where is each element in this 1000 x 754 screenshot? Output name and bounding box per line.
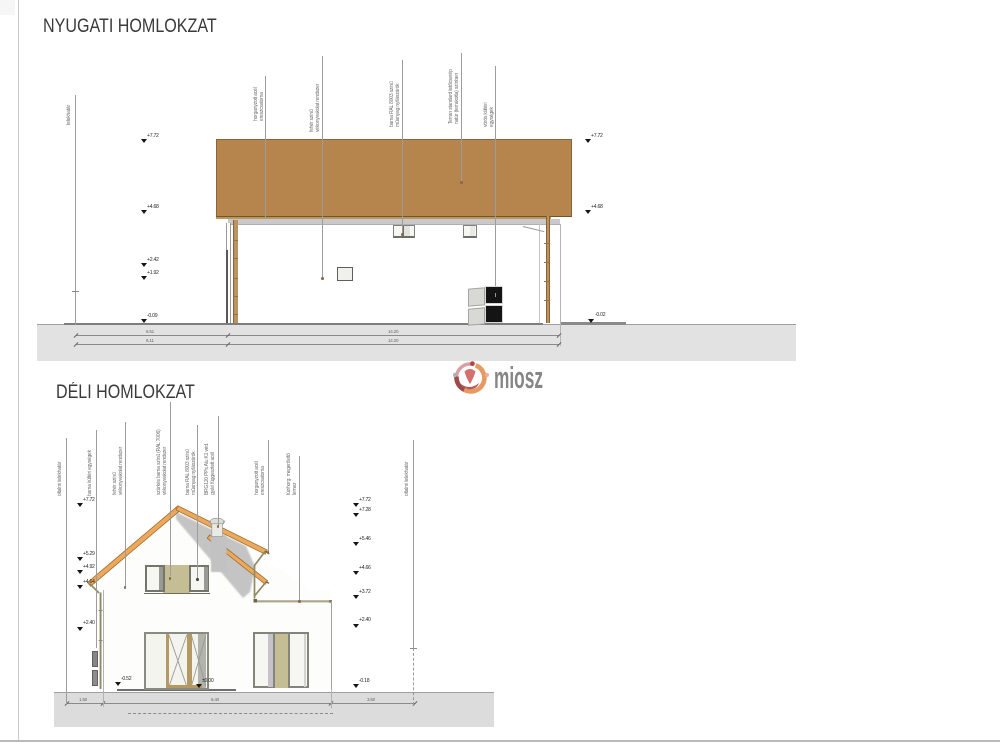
svg-text:miosz: miosz: [494, 360, 543, 395]
